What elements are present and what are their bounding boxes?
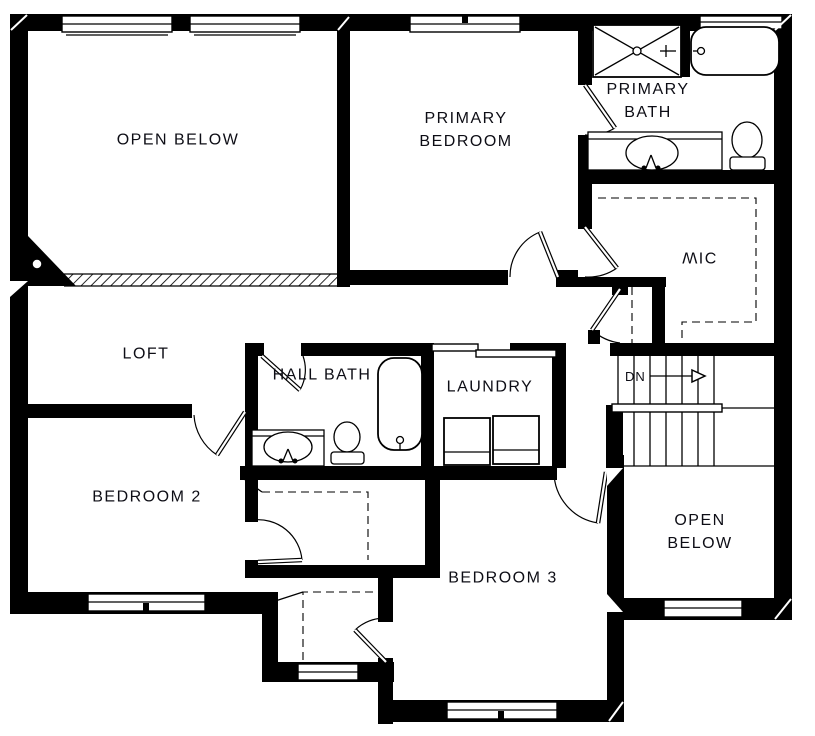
room-label-wic: WIC xyxy=(682,245,718,268)
stairs-dn-label: DN xyxy=(625,368,646,387)
railing-post xyxy=(32,259,42,269)
room-label-primary-bath: PRIMARY BATH xyxy=(606,78,689,124)
toilet-hall-fixture xyxy=(331,422,364,464)
door-wic xyxy=(585,227,617,277)
vanity-primary-fixture xyxy=(588,132,722,171)
door-bedroom-2-closet xyxy=(253,520,302,562)
stair-rail xyxy=(612,404,722,412)
door-bedroom-2 xyxy=(194,412,245,455)
floor-plan-drawing xyxy=(0,0,815,736)
room-label-hall-bath: HALL BATH xyxy=(273,363,372,386)
room-label-open-below-lower: OPEN BELOW xyxy=(643,509,758,555)
window-open-below-right xyxy=(190,16,300,35)
window-open-below-lower xyxy=(664,600,742,617)
sink-hall-fixture xyxy=(264,432,312,462)
door-bedroom-3-closet xyxy=(355,618,386,662)
railing xyxy=(28,236,337,286)
wic-shelf-dashes xyxy=(598,198,756,343)
room-label-primary-bedroom: PRIMARY BEDROOM xyxy=(419,107,512,153)
bedroom2-closet-dashes xyxy=(262,492,368,560)
shower-fixture xyxy=(593,25,681,77)
window-primary-bedroom xyxy=(410,14,520,32)
room-label-bedroom-2: BEDROOM 2 xyxy=(92,485,202,508)
toilet-primary-fixture xyxy=(730,122,765,170)
floor-plan: OPEN BELOW PRIMARY BEDROOM PRIMARY BATH … xyxy=(0,0,815,736)
room-label-laundry: LAUNDRY xyxy=(447,375,534,398)
door-primary-bedroom xyxy=(510,232,558,277)
bathtub-primary-fixture xyxy=(691,27,779,75)
stairs-down-arrow-icon xyxy=(650,370,705,382)
window-open-below-left xyxy=(62,16,172,35)
washer-fixture xyxy=(444,418,490,465)
sink-primary-fixture xyxy=(626,136,678,170)
bathtub-hall-fixture xyxy=(378,358,422,450)
bedroom3-closet-dashes xyxy=(303,592,378,660)
room-label-bedroom-3: BEDROOM 3 xyxy=(448,566,558,589)
window-closet xyxy=(298,664,358,680)
room-label-open-below-upper: OPEN BELOW xyxy=(117,128,240,151)
room-label-loft: LOFT xyxy=(123,342,170,365)
door-bedroom-3 xyxy=(554,472,606,523)
vanity-hall-fixture xyxy=(252,430,324,466)
window-bedroom-3 xyxy=(447,702,557,719)
window-bedroom-2 xyxy=(88,594,205,611)
dryer-fixture xyxy=(493,416,539,464)
